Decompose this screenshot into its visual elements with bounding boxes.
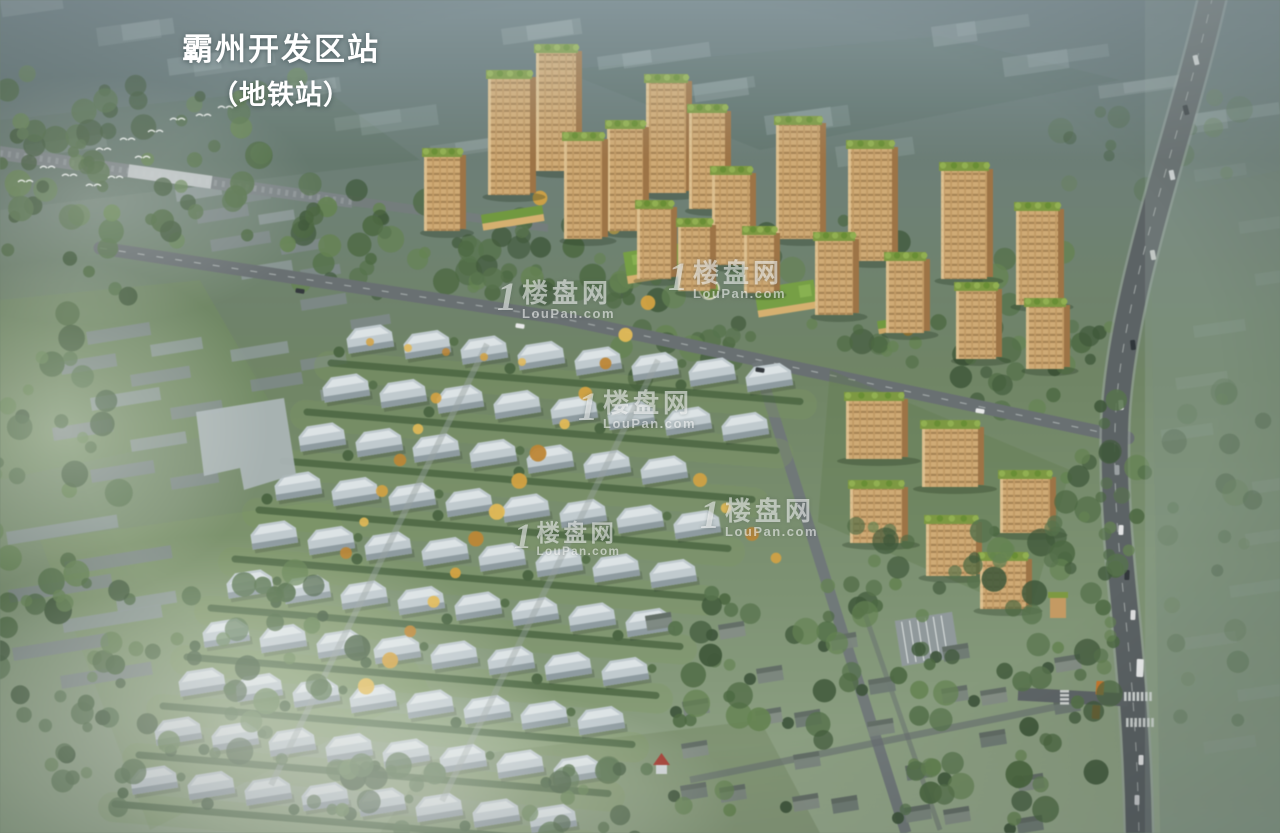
station-caption-line1: 霸州开发区站 [176, 24, 386, 69]
masterplan-scene [0, 0, 1280, 833]
station-caption: 霸州开发区站 （地铁站） [176, 24, 386, 112]
station-caption-line2: （地铁站） [176, 73, 386, 112]
mist-haze [0, 0, 1280, 833]
aerial-masterplan-render: 霸州开发区站 （地铁站） 1 楼盘网 LouPan.com 1 楼盘网 LouP… [0, 0, 1280, 833]
